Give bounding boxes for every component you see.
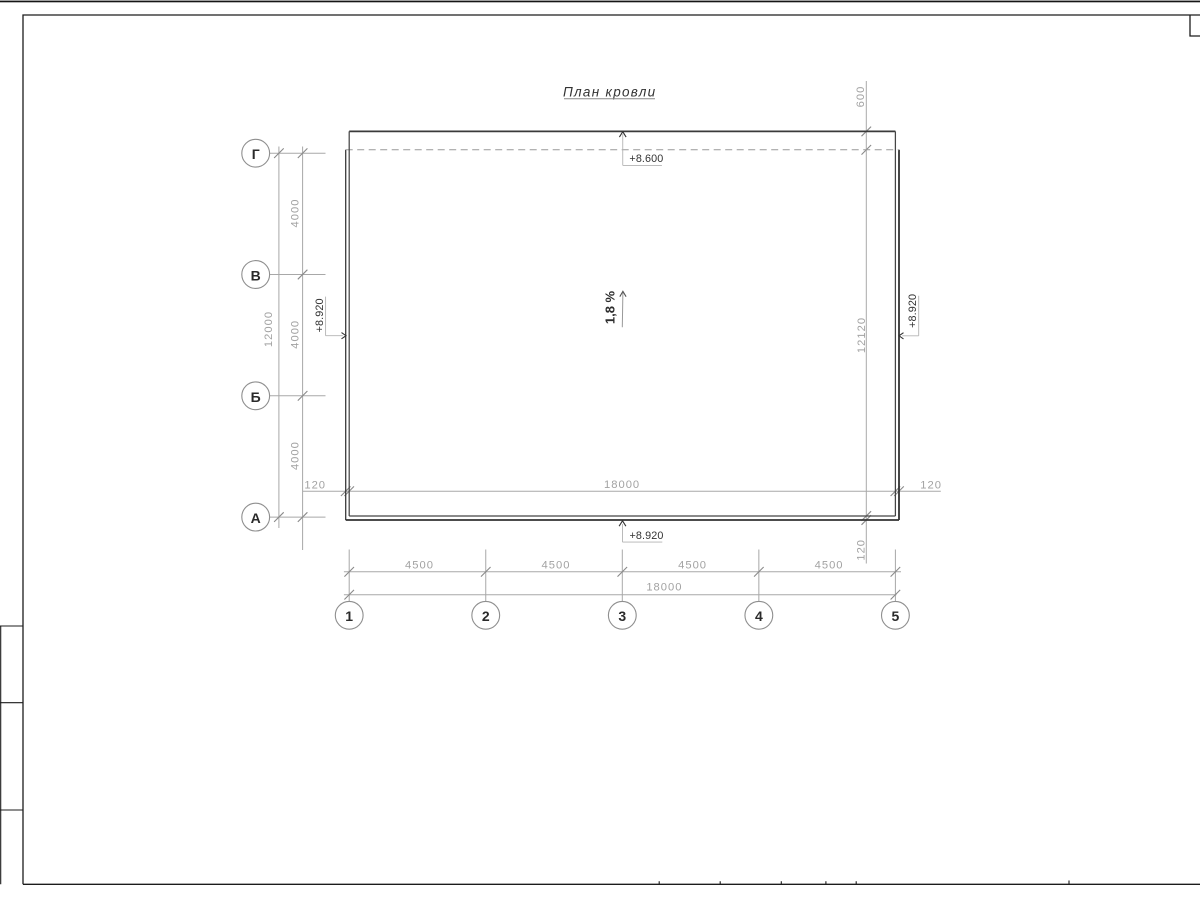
svg-text:4500: 4500 xyxy=(405,560,434,572)
svg-text:18000: 18000 xyxy=(646,581,682,593)
svg-text:1: 1 xyxy=(345,608,353,624)
svg-text:12120: 12120 xyxy=(856,317,868,353)
svg-text:12000: 12000 xyxy=(263,311,275,347)
svg-text:+8.920: +8.920 xyxy=(907,294,919,328)
svg-text:5: 5 xyxy=(892,608,900,624)
svg-text:120: 120 xyxy=(855,539,867,561)
svg-text:4: 4 xyxy=(755,608,763,624)
svg-text:4000: 4000 xyxy=(289,320,301,349)
svg-text:1,8 %: 1,8 % xyxy=(602,290,617,324)
svg-text:План кровли: План кровли xyxy=(563,84,657,99)
svg-text:+8.920: +8.920 xyxy=(314,298,326,332)
svg-text:4000: 4000 xyxy=(289,199,301,228)
svg-text:120: 120 xyxy=(920,480,942,492)
svg-text:4000: 4000 xyxy=(289,441,301,470)
svg-text:4500: 4500 xyxy=(542,560,571,572)
svg-text:4500: 4500 xyxy=(815,560,844,572)
svg-text:Г: Г xyxy=(252,146,260,162)
svg-text:2: 2 xyxy=(482,608,490,624)
svg-text:+8.600: +8.600 xyxy=(629,153,663,165)
svg-text:600: 600 xyxy=(855,86,867,108)
svg-text:4500: 4500 xyxy=(678,560,707,572)
svg-text:120: 120 xyxy=(304,480,326,492)
svg-text:Б: Б xyxy=(251,389,261,405)
svg-text:В: В xyxy=(251,268,261,284)
svg-text:+8.920: +8.920 xyxy=(630,530,664,542)
svg-text:18000: 18000 xyxy=(604,479,640,491)
svg-text:А: А xyxy=(251,510,261,526)
svg-text:3: 3 xyxy=(618,608,626,624)
